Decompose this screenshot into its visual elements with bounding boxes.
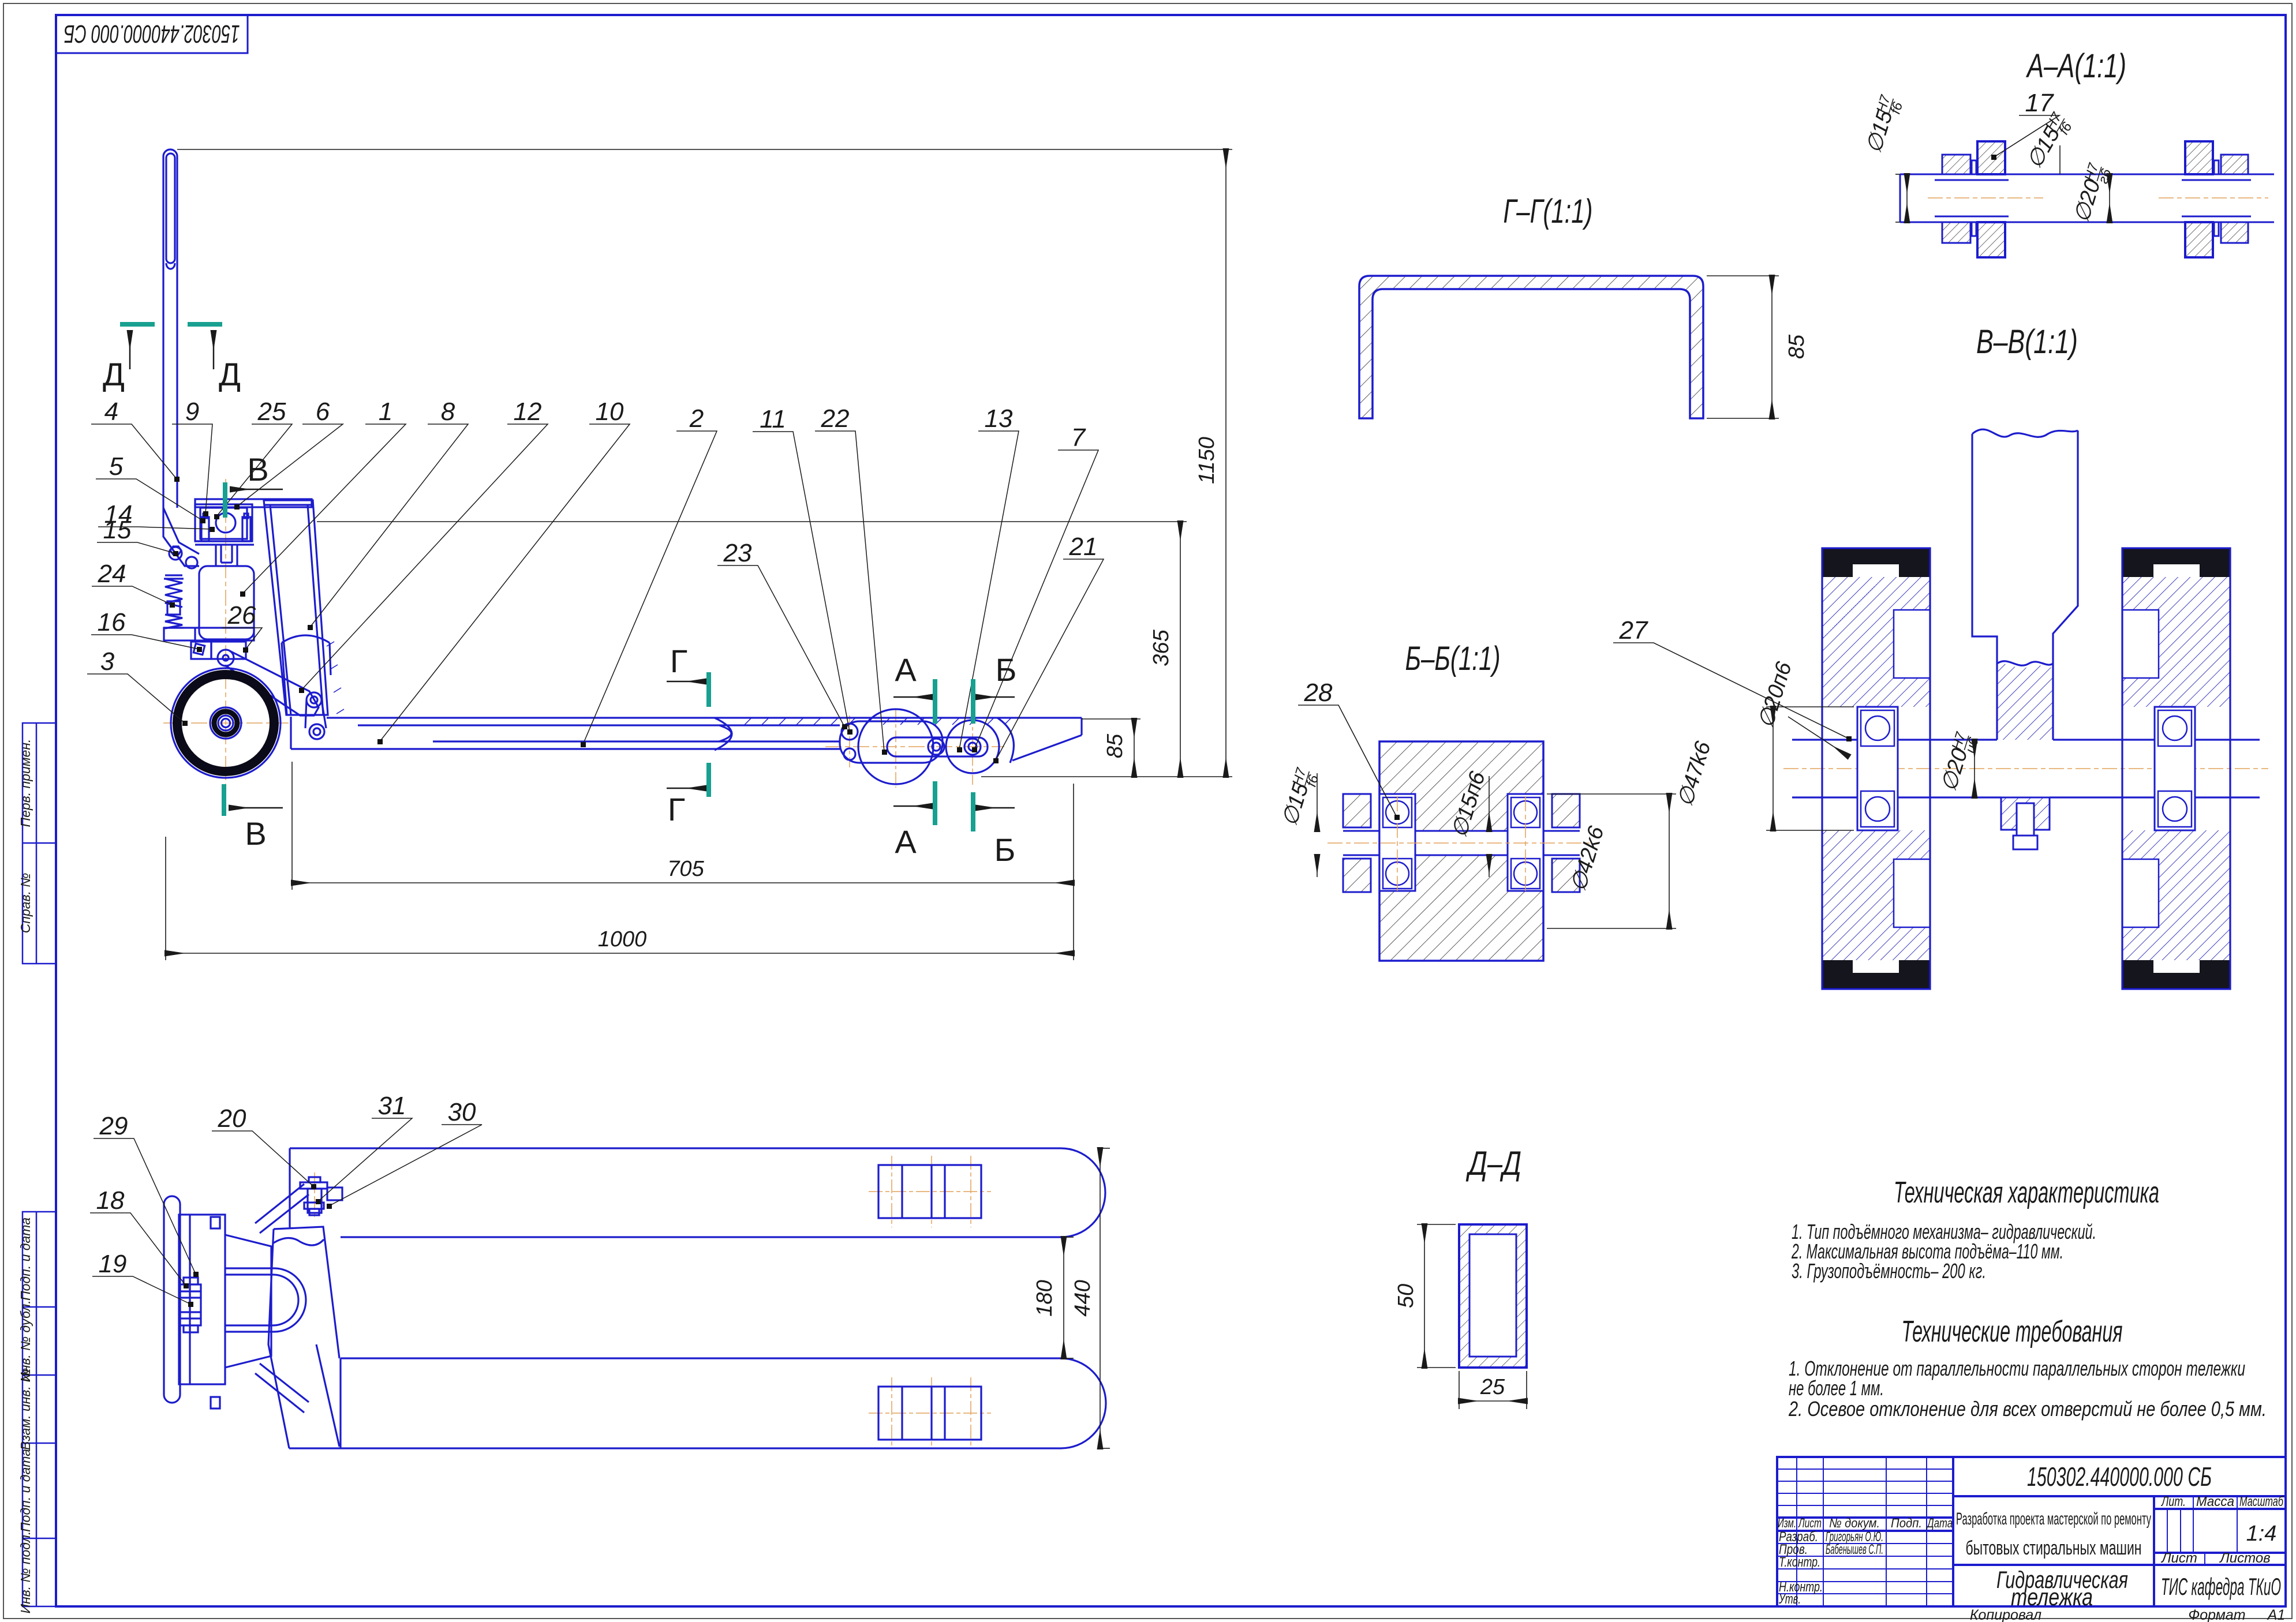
svg-text:21: 21	[1069, 533, 1098, 561]
svg-text:Лист: Лист	[2160, 1550, 2197, 1566]
svg-text:Г: Г	[668, 791, 685, 827]
svg-text:180: 180	[1033, 1280, 1057, 1316]
svg-text:В: В	[247, 451, 268, 488]
svg-text:Д: Д	[103, 356, 125, 392]
svg-text:Справ. №: Справ. №	[18, 873, 33, 934]
svg-text:18: 18	[96, 1186, 125, 1215]
svg-text:бытовых стиральных машин: бытовых стиральных машин	[1966, 1537, 2142, 1559]
svg-text:не более 1 мм.: не более 1 мм.	[1789, 1376, 1884, 1400]
svg-text:Бабенышев С.П.: Бабенышев С.П.	[1826, 1542, 1883, 1557]
svg-text:Б: Б	[996, 651, 1017, 688]
svg-text:∅47k6: ∅47k6	[1673, 738, 1716, 810]
svg-text:365: 365	[1149, 629, 1173, 666]
svg-text:ТИС кафедра ТКиО: ТИС кафедра ТКиО	[2161, 1573, 2281, 1600]
svg-text:27: 27	[1619, 616, 1648, 645]
svg-text:Техническая характеристика: Техническая характеристика	[1894, 1176, 2159, 1209]
svg-text:705: 705	[667, 857, 704, 881]
svg-text:19: 19	[99, 1250, 127, 1278]
svg-text:Взам. инв. №: Взам. инв. №	[18, 1368, 33, 1450]
svg-text:25: 25	[1480, 1375, 1505, 1399]
svg-text:Изм.: Изм.	[1778, 1516, 1796, 1530]
svg-text:15: 15	[103, 516, 132, 544]
svg-text:10: 10	[596, 398, 624, 426]
svg-text:А: А	[895, 651, 917, 688]
svg-text:∅20: ∅20	[2069, 177, 2105, 225]
svg-text:Лист: Лист	[1798, 1516, 1822, 1530]
svg-text:23: 23	[723, 539, 752, 567]
svg-text:1000: 1000	[598, 927, 647, 952]
svg-text:Листов: Листов	[2219, 1550, 2270, 1566]
svg-text:30: 30	[448, 1098, 476, 1126]
svg-text:Копировал: Копировал	[1970, 1607, 2041, 1622]
svg-text:Г: Г	[670, 643, 687, 679]
svg-text:Масса: Масса	[2196, 1494, 2234, 1509]
svg-text:Утв.: Утв.	[1778, 1591, 1801, 1607]
svg-text:29: 29	[99, 1112, 128, 1140]
svg-text:Т.контр.: Т.контр.	[1779, 1554, 1820, 1570]
svg-text:1150: 1150	[1195, 437, 1219, 484]
svg-text:Дата: Дата	[1926, 1516, 1953, 1530]
svg-text:3: 3	[100, 647, 115, 676]
svg-text:Лит.: Лит.	[2161, 1494, 2186, 1509]
svg-text:31: 31	[378, 1092, 406, 1120]
svg-text:∅15: ∅15	[1277, 780, 1313, 829]
svg-text:2. Осевое отклонение для всех: 2. Осевое отклонение для всех отверстий …	[1788, 1397, 2267, 1421]
svg-text:16: 16	[98, 608, 126, 636]
svg-text:А1: А1	[2267, 1607, 2286, 1622]
svg-text:В–В(1:1): В–В(1:1)	[1976, 323, 2078, 361]
svg-text:1: 1	[379, 398, 392, 426]
svg-text:Технические требования: Технические требования	[1902, 1315, 2123, 1348]
svg-text:В: В	[245, 815, 266, 852]
svg-text:8: 8	[441, 398, 455, 426]
svg-text:тележка: тележка	[2011, 1583, 2093, 1610]
svg-text:22: 22	[821, 404, 850, 433]
svg-text:9: 9	[185, 398, 199, 426]
svg-text:Инв. № подл.: Инв. № подл.	[18, 1531, 33, 1614]
svg-text:7: 7	[1071, 424, 1086, 452]
svg-text:∅15: ∅15	[1861, 107, 1897, 156]
svg-text:85: 85	[1785, 334, 1809, 359]
svg-text:Формат: Формат	[2188, 1607, 2245, 1622]
svg-text:26: 26	[227, 601, 256, 630]
svg-text:85: 85	[1103, 733, 1127, 758]
svg-text:150302.440000.000 СБ: 150302.440000.000 СБ	[64, 20, 240, 48]
svg-text:5: 5	[109, 452, 124, 481]
svg-text:12: 12	[514, 398, 542, 426]
svg-text:Д–Д: Д–Д	[1465, 1145, 1521, 1182]
svg-text:50: 50	[1394, 1284, 1418, 1308]
svg-text:Подп.: Подп.	[1891, 1516, 1922, 1530]
svg-text:Подп. и дата: Подп. и дата	[18, 1449, 33, 1532]
svg-text:24: 24	[98, 560, 126, 588]
svg-text:№ докум.: № докум.	[1829, 1516, 1880, 1530]
svg-text:2: 2	[689, 404, 704, 433]
svg-text:∅20: ∅20	[1936, 746, 1972, 794]
svg-text:20: 20	[218, 1104, 246, 1133]
svg-text:Перв. примен.: Перв. примен.	[18, 739, 33, 827]
svg-text:13: 13	[985, 404, 1013, 433]
svg-text:3. Грузоподъёмность– 200 кг.: 3. Грузоподъёмность– 200 кг.	[1792, 1259, 1986, 1283]
svg-text:Б: Б	[994, 831, 1016, 868]
svg-text:Подп. и дата: Подп. и дата	[18, 1218, 33, 1301]
svg-text:150302.440000.000 СБ: 150302.440000.000 СБ	[2027, 1462, 2212, 1492]
svg-text:А: А	[895, 823, 917, 860]
svg-text:Масштаб: Масштаб	[2239, 1494, 2284, 1509]
svg-text:Б–Б(1:1): Б–Б(1:1)	[1405, 640, 1501, 677]
svg-text:1:4: 1:4	[2246, 1522, 2277, 1546]
svg-text:Г–Г(1:1): Г–Г(1:1)	[1504, 193, 1593, 230]
svg-text:Д: Д	[219, 356, 241, 392]
svg-text:28: 28	[1304, 679, 1333, 707]
svg-text:11: 11	[760, 405, 786, 433]
svg-text:4: 4	[104, 398, 118, 426]
svg-text:6: 6	[316, 398, 330, 426]
svg-text:440: 440	[1071, 1280, 1095, 1316]
svg-text:Разработка проекта мастерской: Разработка проекта мастерской по ремонту	[1956, 1509, 2151, 1529]
svg-text:25: 25	[257, 398, 286, 426]
svg-text:А–А(1:1): А–А(1:1)	[2026, 47, 2126, 85]
